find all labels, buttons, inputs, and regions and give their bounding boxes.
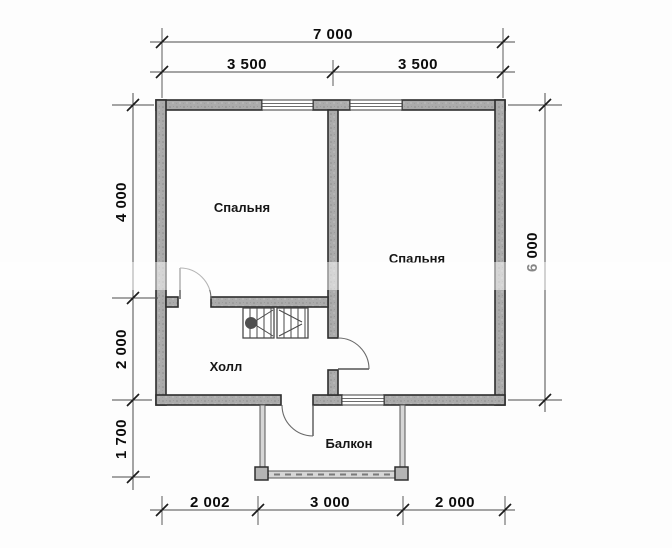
room-label-balcony: Балкон	[326, 436, 373, 451]
interior-wall-vertical	[328, 110, 338, 338]
top-wall-segment-middle	[313, 100, 350, 110]
dim-bottom-center: 3 000	[310, 494, 350, 511]
window-top-right-icon	[350, 100, 402, 110]
top-wall-segment-left	[156, 100, 262, 110]
balcony-railing-left	[260, 405, 265, 475]
interior-wall-vertical-stub	[328, 370, 338, 395]
window-top-left-icon	[262, 100, 313, 110]
dimension-right: 6 000	[508, 93, 562, 412]
dim-left-lower: 2 000	[113, 329, 130, 369]
window-bottom-icon	[342, 395, 384, 405]
balcony-post-left-icon	[255, 467, 268, 480]
interior-wall-horizontal-stub	[166, 297, 178, 307]
stair-newel-post-icon	[245, 317, 257, 329]
dimension-left: 4 000 2 000 1 700	[112, 93, 158, 490]
door-bedroom-right-icon	[338, 338, 369, 369]
dim-top-right-half: 3 500	[398, 56, 438, 73]
interior-wall-horizontal	[211, 297, 328, 307]
bottom-wall-segment-middle	[313, 395, 342, 405]
floor-plan-canvas: Спальня Спальня Холл Балкон 7 000 3 500 …	[0, 0, 672, 548]
staircase	[243, 308, 308, 338]
floor-plan-page: Спальня Спальня Холл Балкон 7 000 3 500 …	[0, 0, 672, 548]
dimension-top: 7 000 3 500 3 500	[150, 26, 515, 98]
dim-top-total: 7 000	[313, 26, 353, 43]
dim-bottom-right: 2 000	[435, 494, 475, 511]
dim-bottom-left: 2 002	[190, 494, 230, 511]
bottom-wall-segment-left	[156, 395, 281, 405]
door-balcony-icon	[282, 405, 313, 436]
dim-top-left-half: 3 500	[227, 56, 267, 73]
left-wall	[156, 100, 166, 405]
interior-walls	[166, 110, 338, 395]
watermark-band	[0, 262, 672, 290]
right-wall	[495, 100, 505, 405]
dimension-bottom: 2 002 3 000 2 000	[150, 494, 515, 525]
dim-left-upper: 4 000	[113, 182, 130, 222]
balcony-railing-right	[400, 405, 405, 475]
balcony-post-right-icon	[395, 467, 408, 480]
bottom-wall-segment-right	[384, 395, 505, 405]
dim-left-balcony: 1 700	[113, 419, 130, 459]
top-wall-segment-right	[402, 100, 505, 110]
room-label-bedroom-left: Спальня	[214, 200, 270, 215]
room-label-hall: Холл	[210, 359, 243, 374]
